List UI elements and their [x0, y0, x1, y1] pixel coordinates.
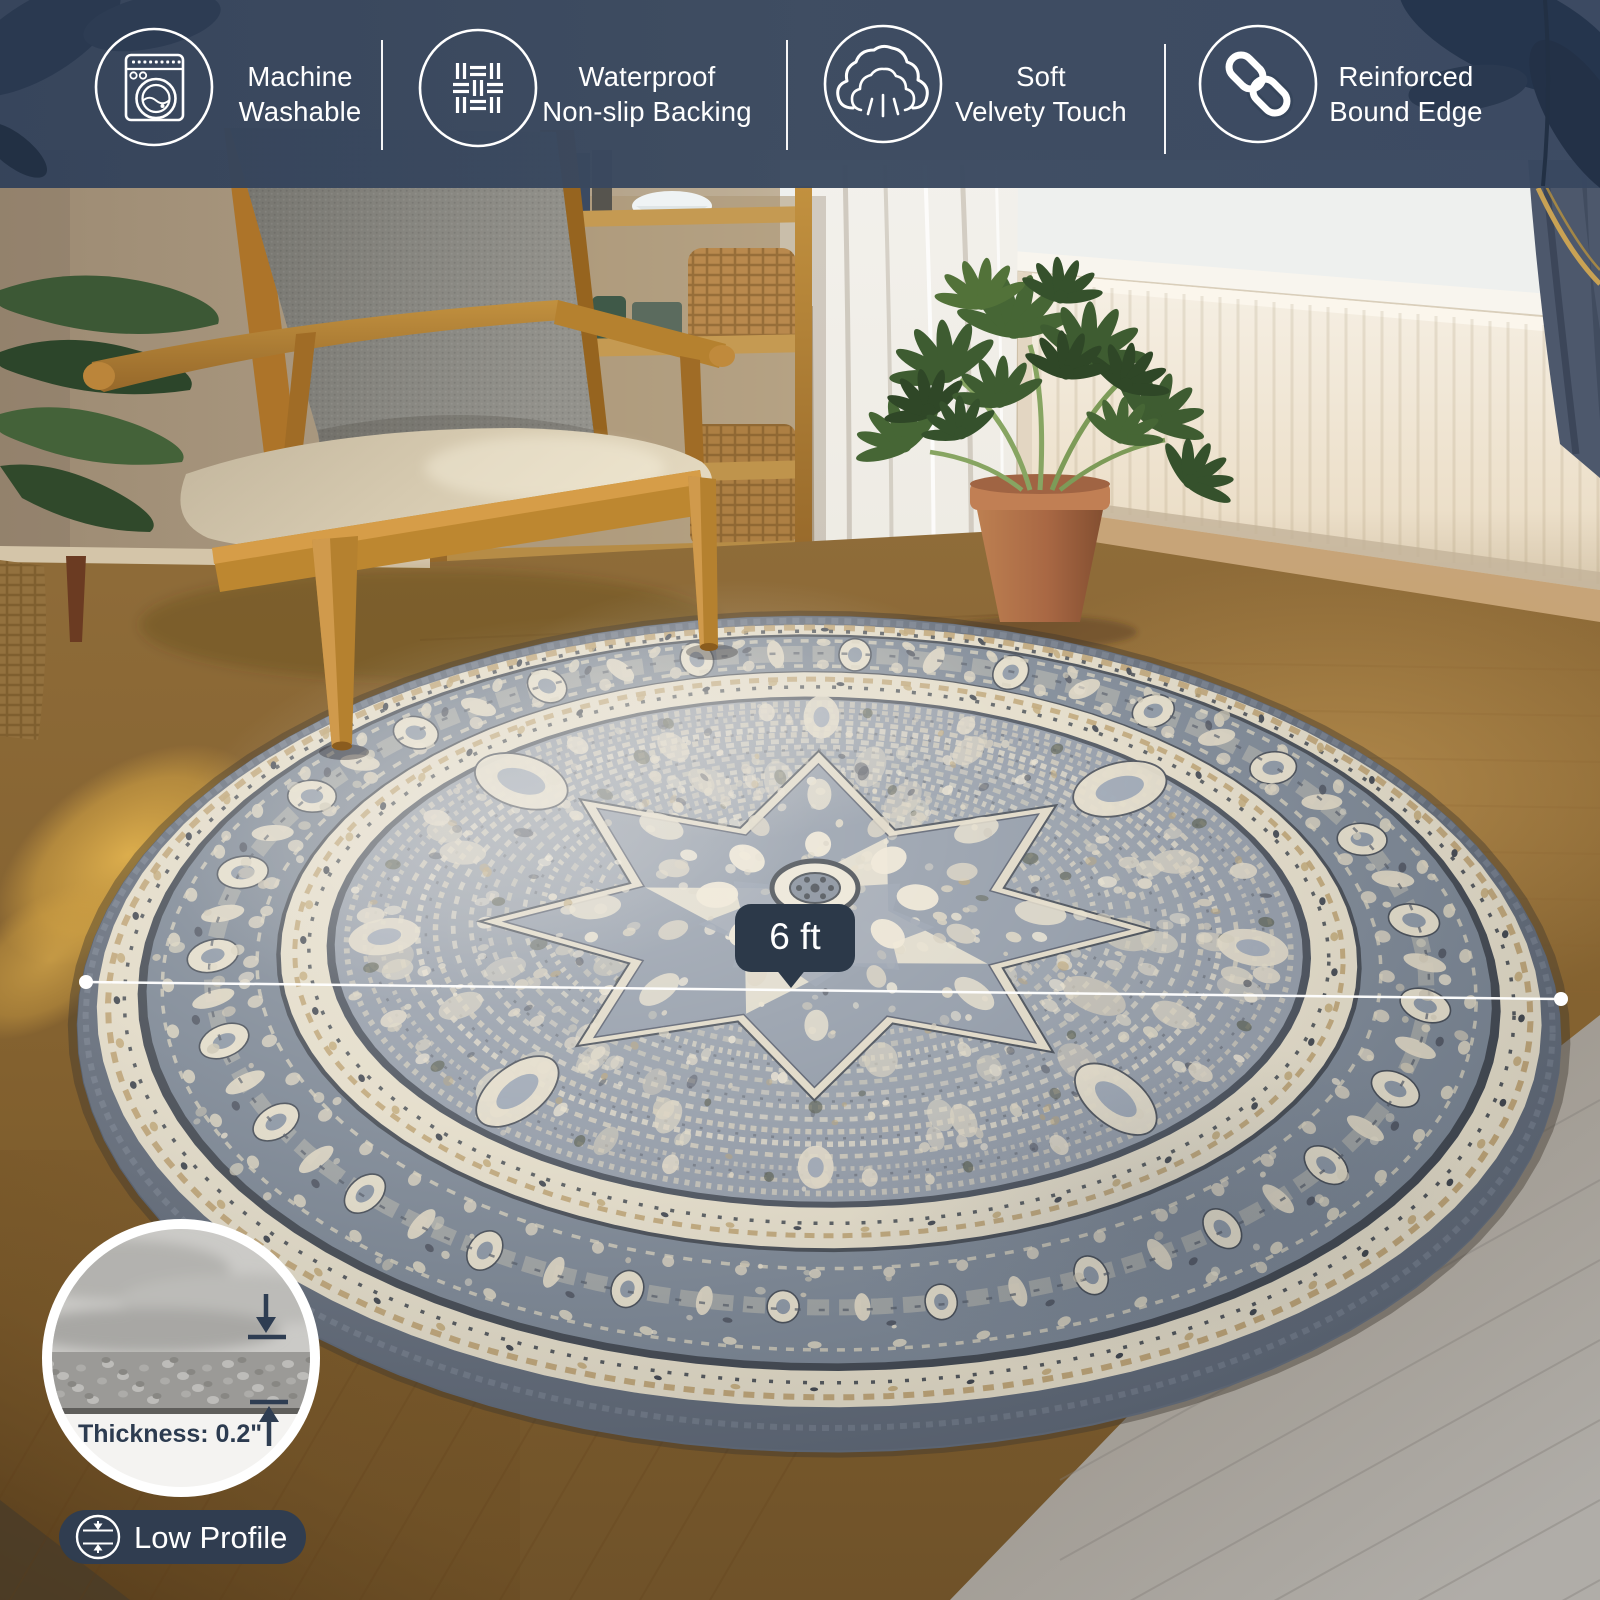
- svg-text:Waterproof: Waterproof: [578, 61, 715, 92]
- svg-text:6 ft: 6 ft: [769, 916, 821, 957]
- svg-text:Machine: Machine: [247, 61, 352, 92]
- svg-text:Velvety Touch: Velvety Touch: [955, 96, 1127, 127]
- svg-text:Soft: Soft: [1016, 61, 1066, 92]
- svg-text:Bound Edge: Bound Edge: [1329, 96, 1482, 127]
- svg-text:Washable: Washable: [239, 96, 362, 127]
- svg-text:Reinforced: Reinforced: [1339, 61, 1474, 92]
- svg-text:Thickness: 0.2": Thickness: 0.2": [78, 1420, 262, 1448]
- svg-text:Non-slip Backing: Non-slip Backing: [542, 96, 752, 127]
- svg-text:Low Profile: Low Profile: [134, 1520, 287, 1555]
